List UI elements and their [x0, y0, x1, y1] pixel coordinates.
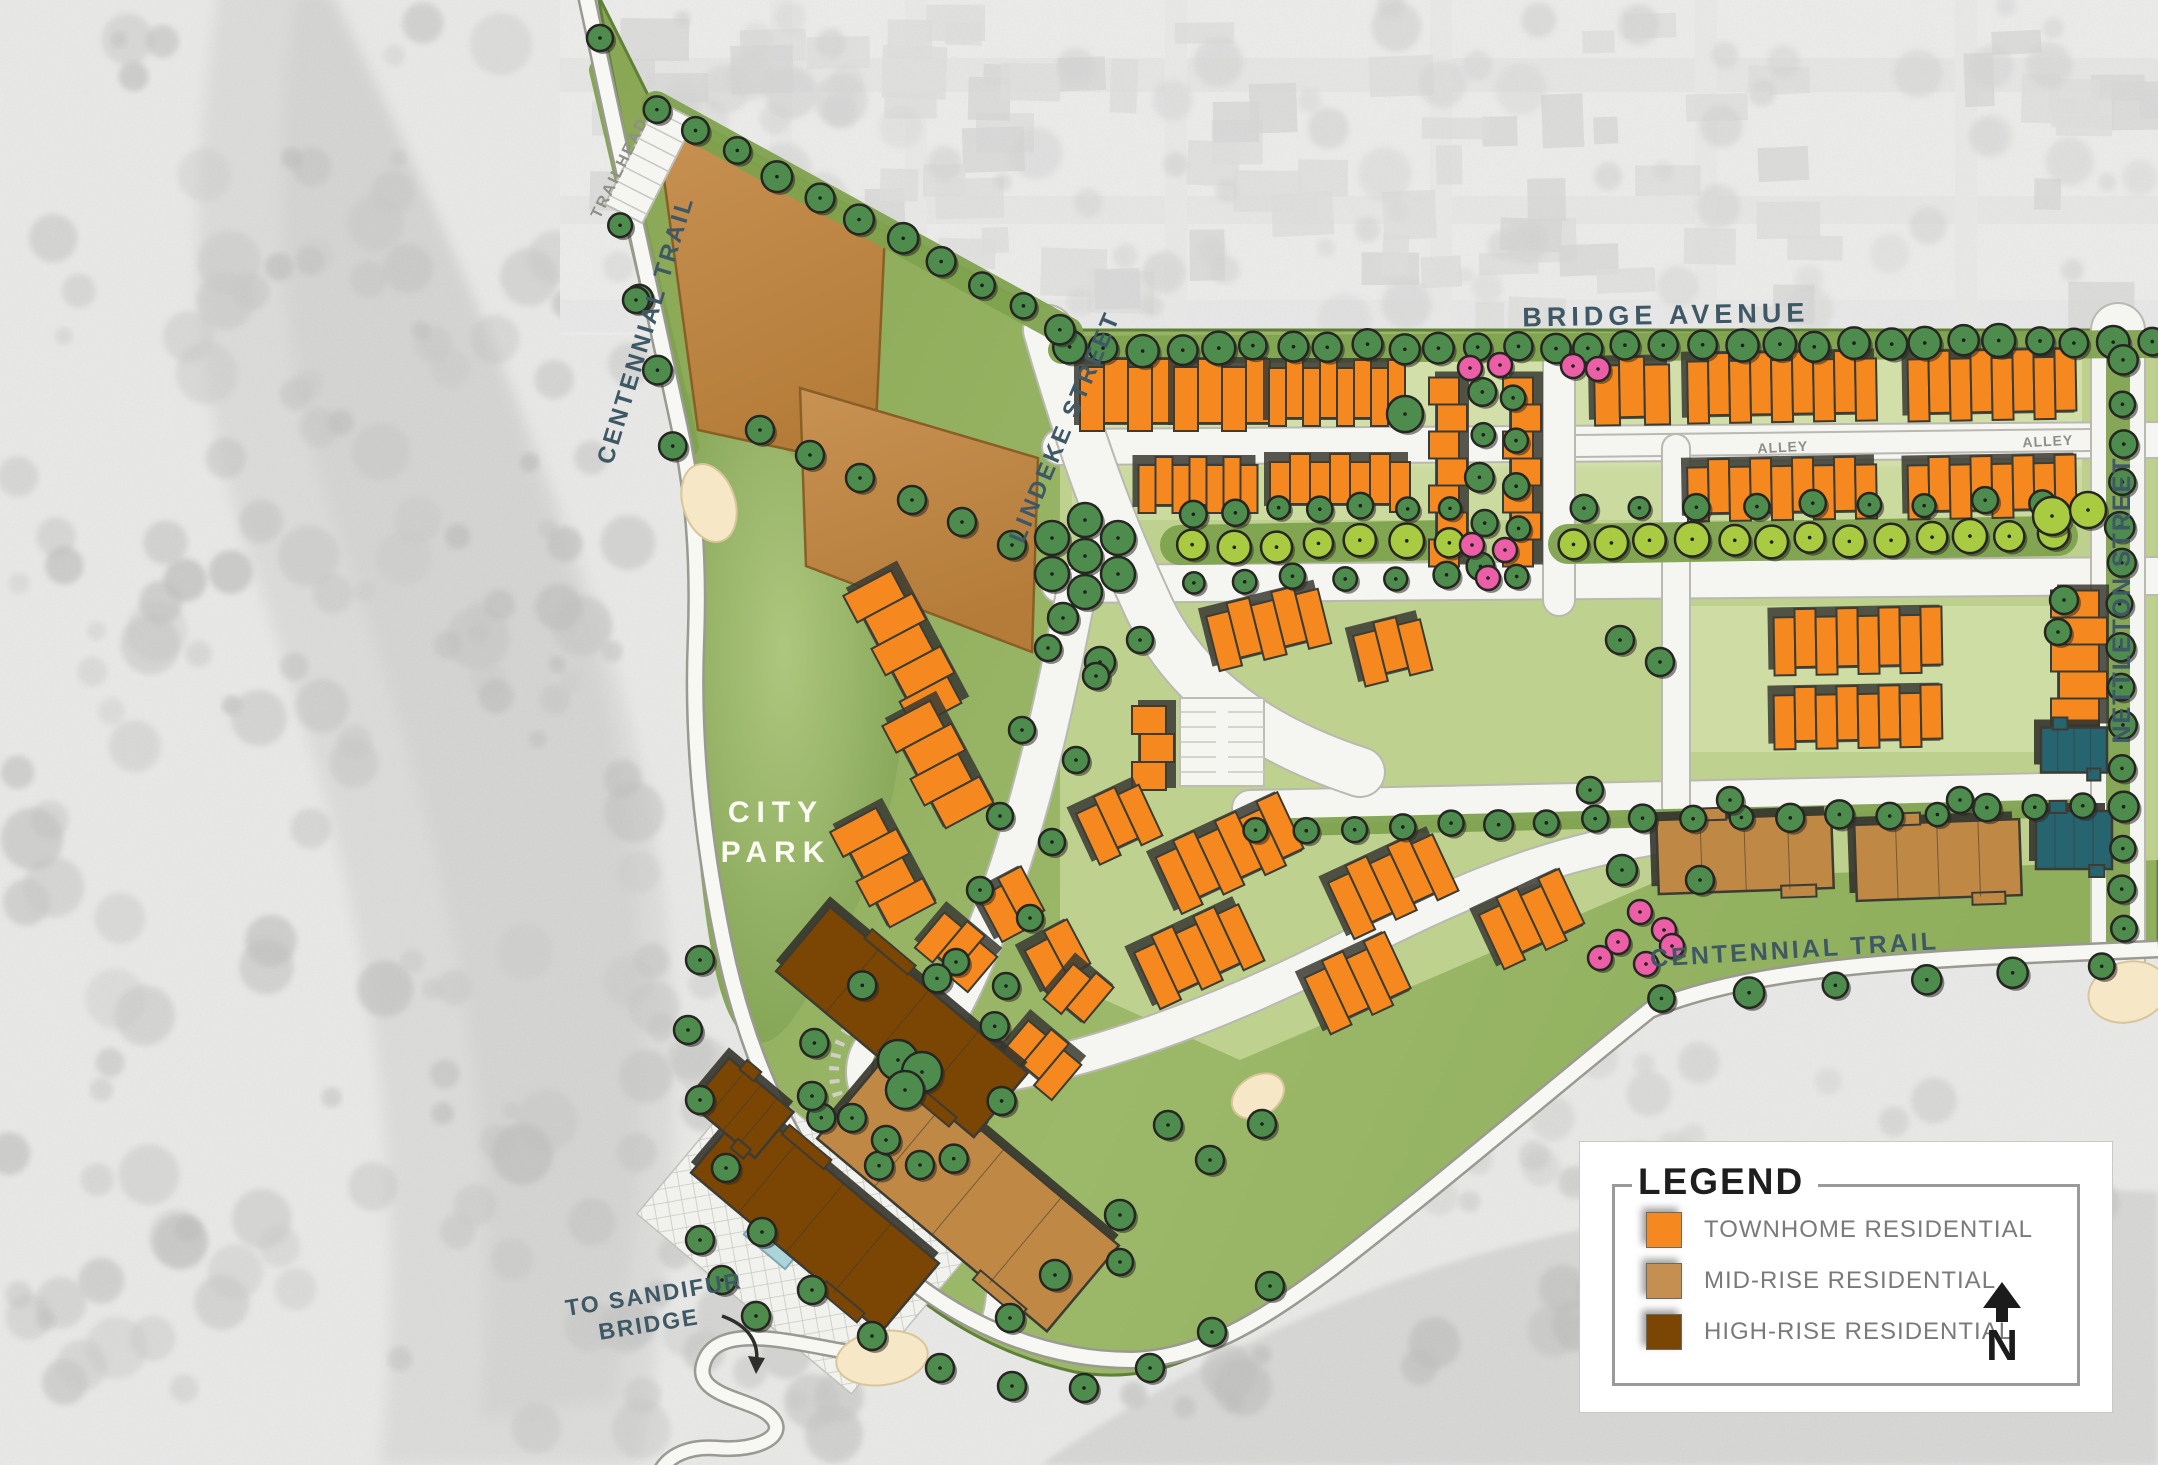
label-alley-west: ALLEY	[1757, 438, 1809, 457]
townhome-row	[1767, 683, 1942, 750]
civic-building	[2034, 718, 2107, 781]
parking-lot	[1180, 698, 1264, 786]
townhome-row	[1168, 357, 1270, 431]
legend-item-highrise: HIGH-RISE RESIDENTIAL	[1646, 1314, 2013, 1350]
midrise-color-swatch	[1646, 1263, 1682, 1299]
north-letter: N	[1976, 1329, 2028, 1363]
legend-title: LEGEND	[1632, 1158, 1818, 1206]
legend-item-label: HIGH-RISE RESIDENTIAL	[1704, 1318, 2013, 1346]
legend-item-townhome: TOWNHOME RESIDENTIAL	[1646, 1212, 2033, 1248]
townhome-row	[1263, 358, 1405, 426]
label-bridge-avenue: BRIDGE AVENUE	[1522, 297, 1810, 332]
legend-item-midrise: MID-RISE RESIDENTIAL	[1646, 1263, 1996, 1299]
townhome-row	[1132, 700, 1176, 790]
north-arrow-icon: N	[1976, 1282, 2028, 1374]
legend-item-label: MID-RISE RESIDENTIAL	[1704, 1267, 1996, 1295]
highrise-color-swatch	[1646, 1314, 1682, 1350]
label-city-park-1: CITY	[728, 796, 824, 829]
label-city-park-2: PARK	[721, 836, 832, 869]
townhome-row	[1767, 605, 1942, 676]
label-nettleton-street: NETTLETON STREET	[2108, 456, 2136, 743]
label-alley-east: ALLEY	[2022, 432, 2074, 451]
townhome-color-swatch	[1646, 1212, 1682, 1248]
site-plan-screenshot: BRIDGE AVENUE LINDEKE STREET NETTLETON S…	[0, 0, 2158, 1465]
north-arrow-glyph	[1979, 1282, 2025, 1322]
legend: LEGEND TOWNHOME RESIDENTIAL MID-RISE RES…	[1579, 1141, 2113, 1413]
legend-item-label: TOWNHOME RESIDENTIAL	[1704, 1216, 2033, 1244]
